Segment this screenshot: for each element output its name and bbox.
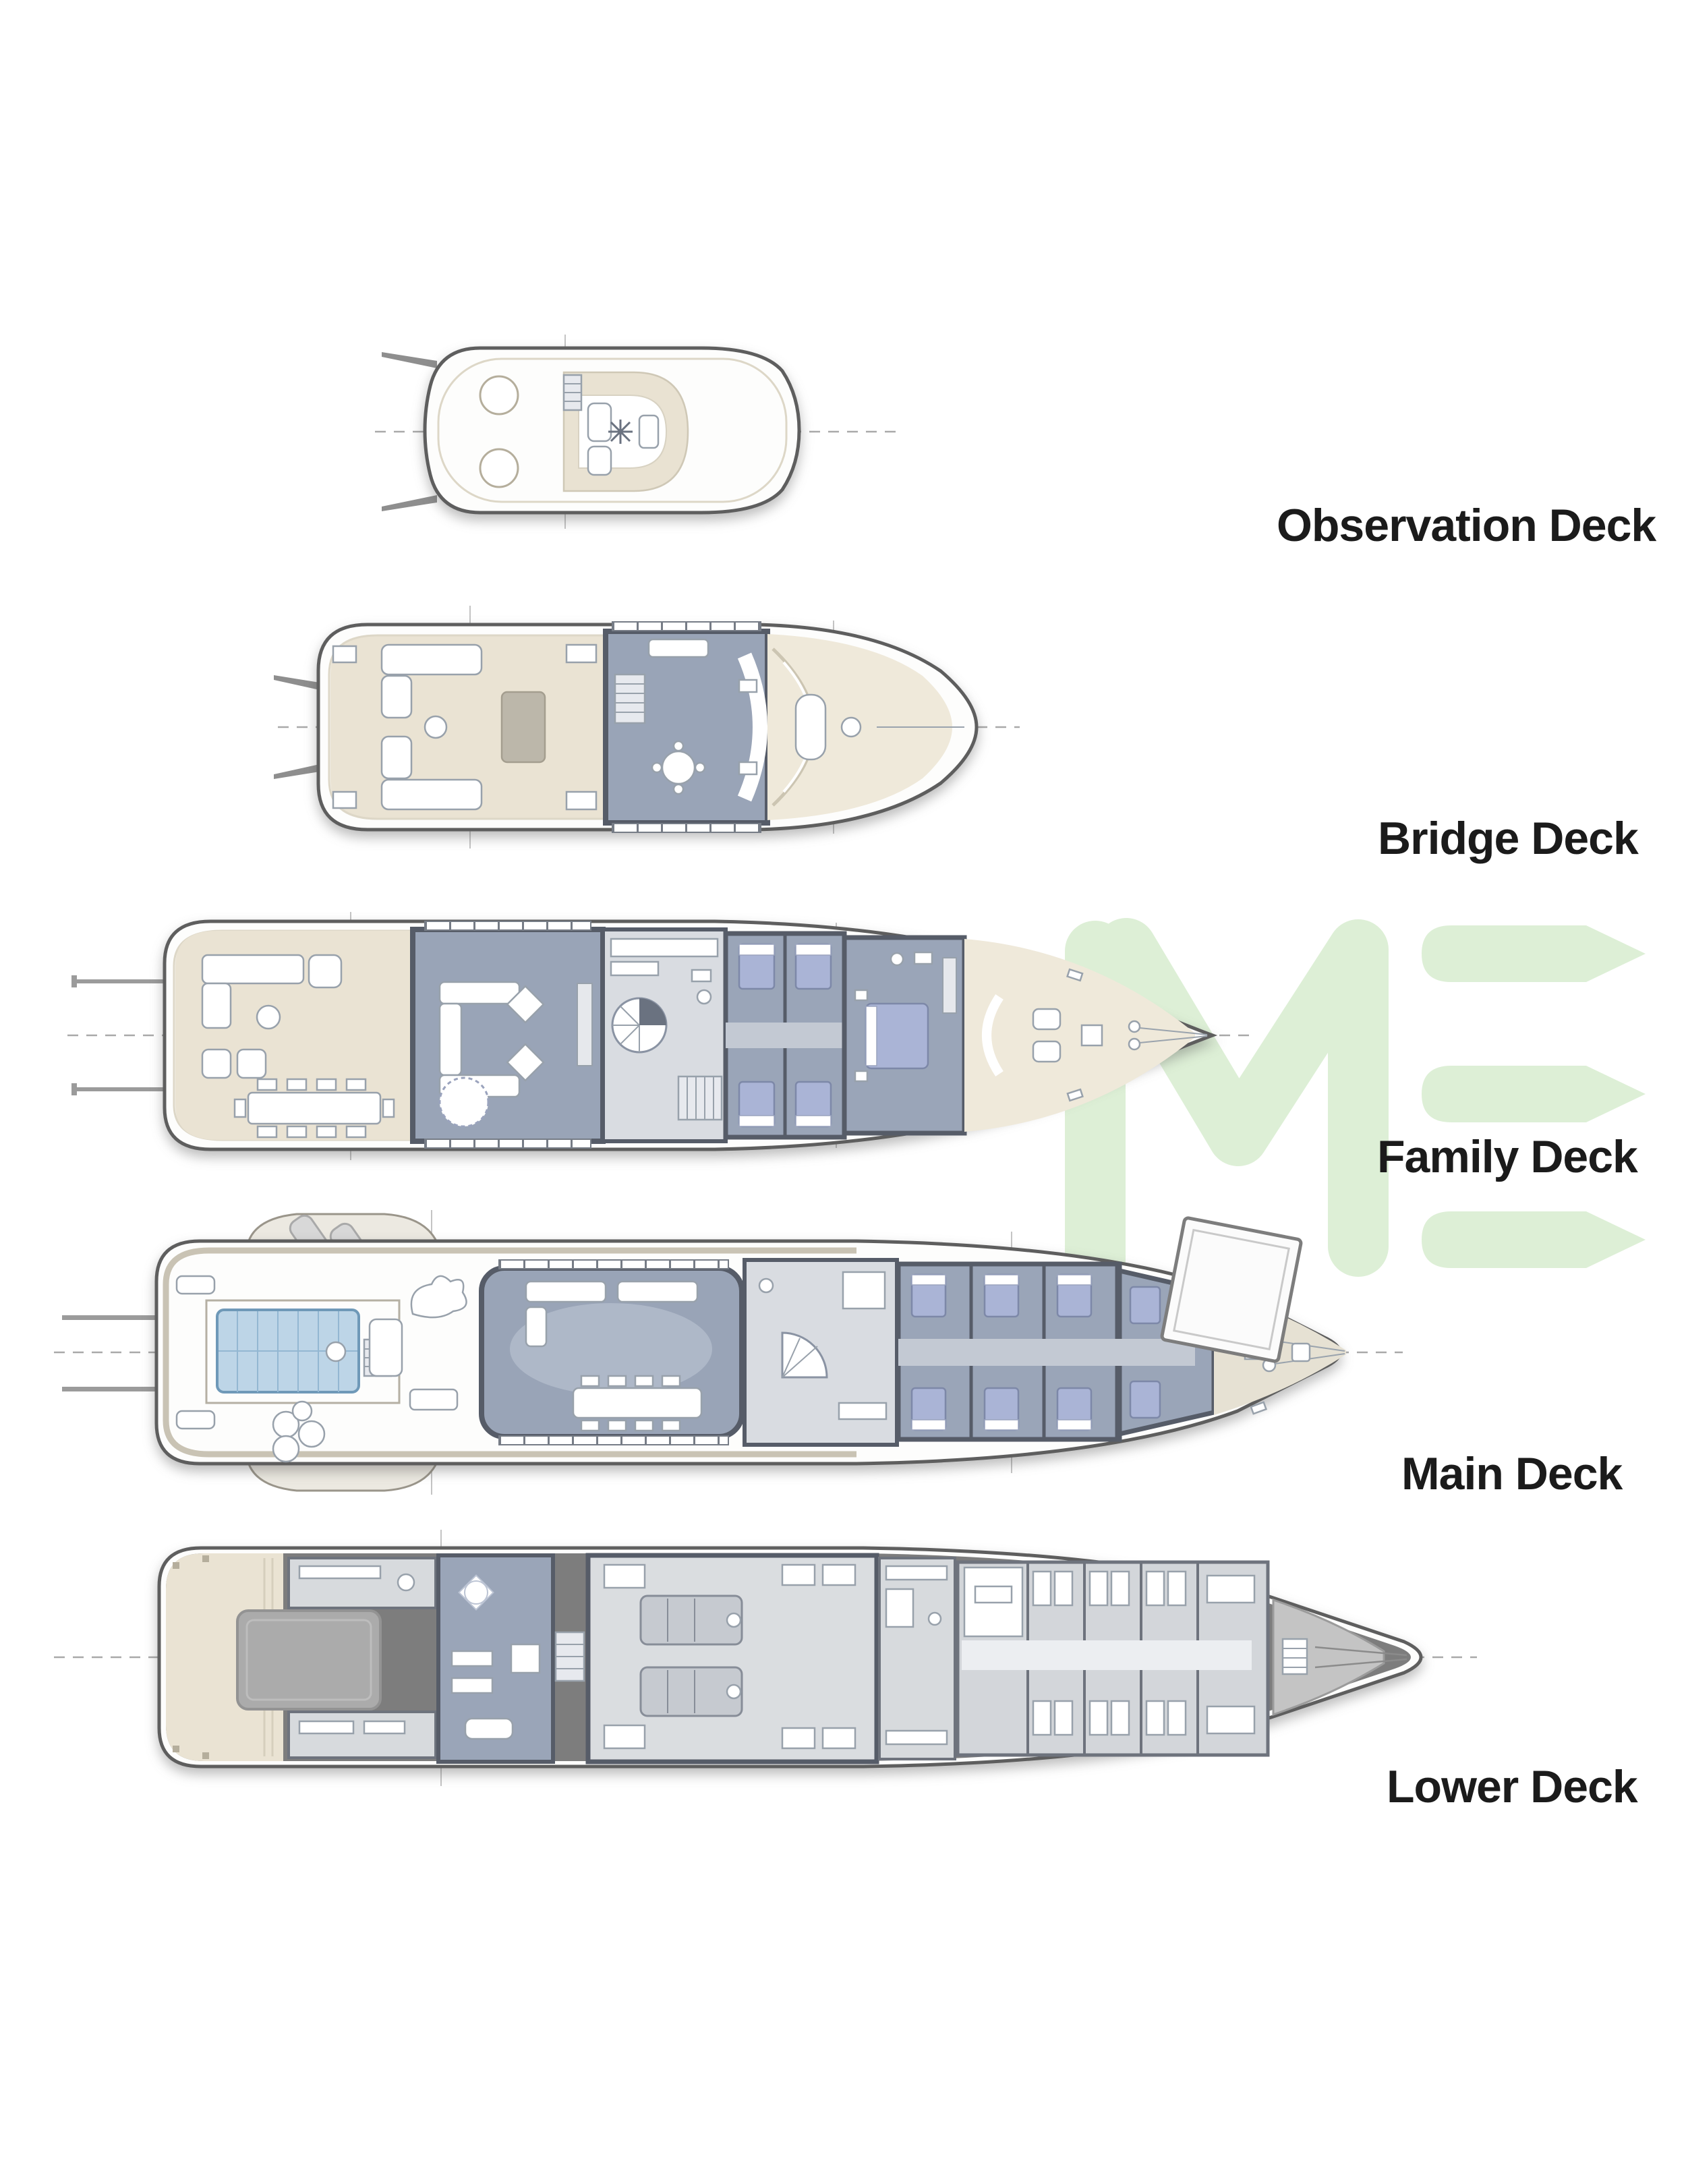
tender-hatch-platform	[237, 1611, 380, 1709]
spa-hammam	[438, 1555, 553, 1762]
bridge-deck-plan	[266, 587, 1028, 857]
deck-label-bridge: Bridge Deck	[1378, 813, 1638, 864]
watermark-letter-e	[1422, 925, 1646, 1268]
master-suite	[844, 938, 964, 1133]
deck-label-main: Main Deck	[1401, 1449, 1622, 1499]
guest-cabins	[898, 1264, 1214, 1439]
guest-cabins	[726, 933, 844, 1137]
deck-label-observation: Observation Deck	[1277, 500, 1656, 551]
lower-deck-plan	[47, 1511, 1490, 1808]
crew-quarters	[958, 1562, 1268, 1755]
observation-deck-plan	[364, 297, 917, 540]
galley-laundry	[879, 1558, 955, 1759]
crew-corridor	[962, 1640, 1252, 1670]
deck-label-family: Family Deck	[1377, 1132, 1637, 1182]
corridor	[898, 1339, 1195, 1366]
main-salon	[482, 1260, 742, 1445]
engine-room	[588, 1555, 877, 1762]
main-deck-plan	[47, 1201, 1409, 1497]
main-salon	[413, 921, 603, 1148]
tender-garage-hatch	[1161, 1217, 1302, 1362]
fore-deck	[767, 634, 964, 820]
deck-label-lower: Lower Deck	[1387, 1762, 1637, 1812]
yacht-deck-plans-page: Observation Deck	[0, 0, 1686, 2184]
passerelle-booms	[62, 1315, 158, 1391]
wheelhouse	[606, 622, 767, 832]
family-deck-plan	[61, 904, 1261, 1174]
galley-lobby	[603, 929, 726, 1141]
stern-wing-bottom	[248, 1462, 437, 1491]
fore-deck	[964, 939, 1207, 1132]
dining-table	[573, 1388, 701, 1418]
lobby-galley	[745, 1260, 897, 1445]
